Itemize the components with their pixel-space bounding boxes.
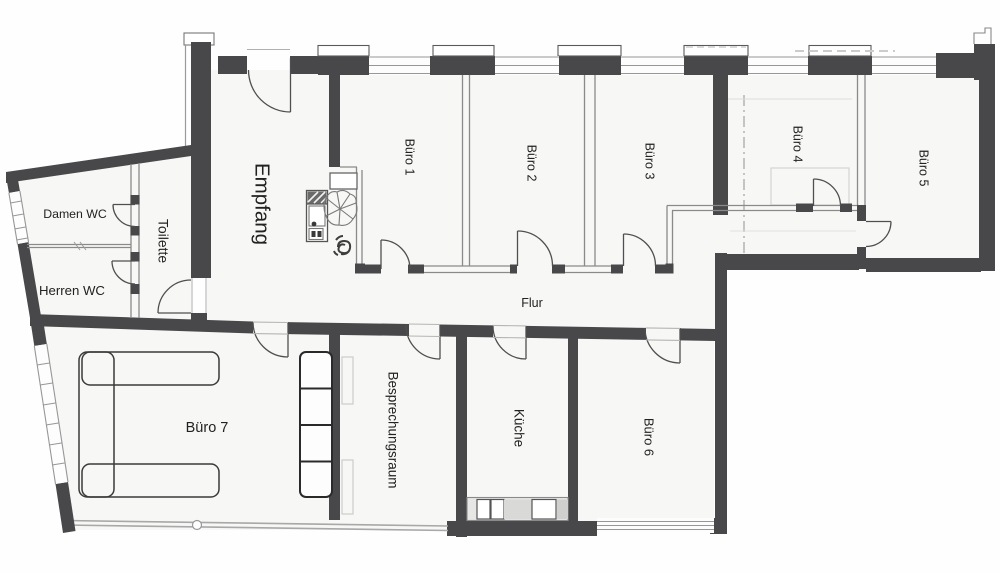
svg-text:Toilette: Toilette <box>155 219 171 264</box>
svg-text:Büro 7: Büro 7 <box>186 420 229 436</box>
svg-text:Küche: Küche <box>511 409 526 447</box>
svg-text:Herren WC: Herren WC <box>39 283 105 298</box>
svg-text:Empfang: Empfang <box>251 163 274 245</box>
svg-text:Flur: Flur <box>521 296 543 310</box>
svg-text:Büro 3: Büro 3 <box>643 143 657 180</box>
svg-text:Büro 2: Büro 2 <box>525 145 539 182</box>
svg-text:Damen WC: Damen WC <box>43 207 107 221</box>
svg-text:Büro 6: Büro 6 <box>642 418 657 456</box>
svg-text:Büro 4: Büro 4 <box>791 126 805 163</box>
svg-text:Besprechungsraum: Besprechungsraum <box>385 371 400 488</box>
svg-text:Büro 5: Büro 5 <box>917 150 931 187</box>
svg-text:Büro 1: Büro 1 <box>403 139 417 176</box>
